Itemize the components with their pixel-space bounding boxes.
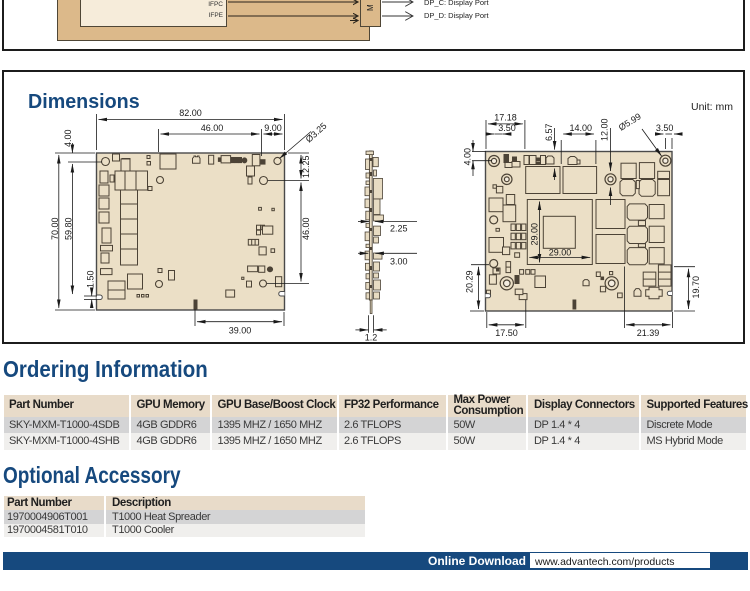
svg-text:Ø3.25: Ø3.25 <box>304 121 329 145</box>
svg-text:29.00: 29.00 <box>549 247 572 257</box>
svg-text:59.80: 59.80 <box>64 217 74 240</box>
svg-text:3.00: 3.00 <box>390 257 408 267</box>
svg-text:4.00: 4.00 <box>63 129 73 147</box>
svg-text:2.25: 2.25 <box>390 224 408 234</box>
svg-text:1.2: 1.2 <box>365 333 378 343</box>
svg-text:9.00: 9.00 <box>264 123 282 133</box>
svg-text:46.00: 46.00 <box>301 217 311 240</box>
svg-text:17.50: 17.50 <box>495 328 518 338</box>
svg-text:19.70: 19.70 <box>691 276 701 299</box>
svg-text:70.00: 70.00 <box>50 217 60 240</box>
svg-text:17.18: 17.18 <box>494 113 517 123</box>
svg-text:3.50: 3.50 <box>656 123 674 133</box>
svg-text:6.57: 6.57 <box>544 123 554 141</box>
svg-text:82.00: 82.00 <box>179 108 202 118</box>
svg-text:29.00: 29.00 <box>530 223 540 246</box>
svg-text:3.50: 3.50 <box>498 123 516 133</box>
svg-text:39.00: 39.00 <box>229 326 252 336</box>
svg-text:Ø5.99: Ø5.99 <box>617 111 643 132</box>
svg-text:21.39: 21.39 <box>637 328 660 338</box>
svg-text:12.00: 12.00 <box>600 118 610 141</box>
svg-text:4.00: 4.00 <box>463 148 473 166</box>
svg-text:20.29: 20.29 <box>465 270 475 293</box>
svg-text:14.00: 14.00 <box>570 123 593 133</box>
svg-text:12.25: 12.25 <box>301 155 311 178</box>
svg-text:46.00: 46.00 <box>201 123 224 133</box>
svg-text:1.50: 1.50 <box>86 270 96 288</box>
